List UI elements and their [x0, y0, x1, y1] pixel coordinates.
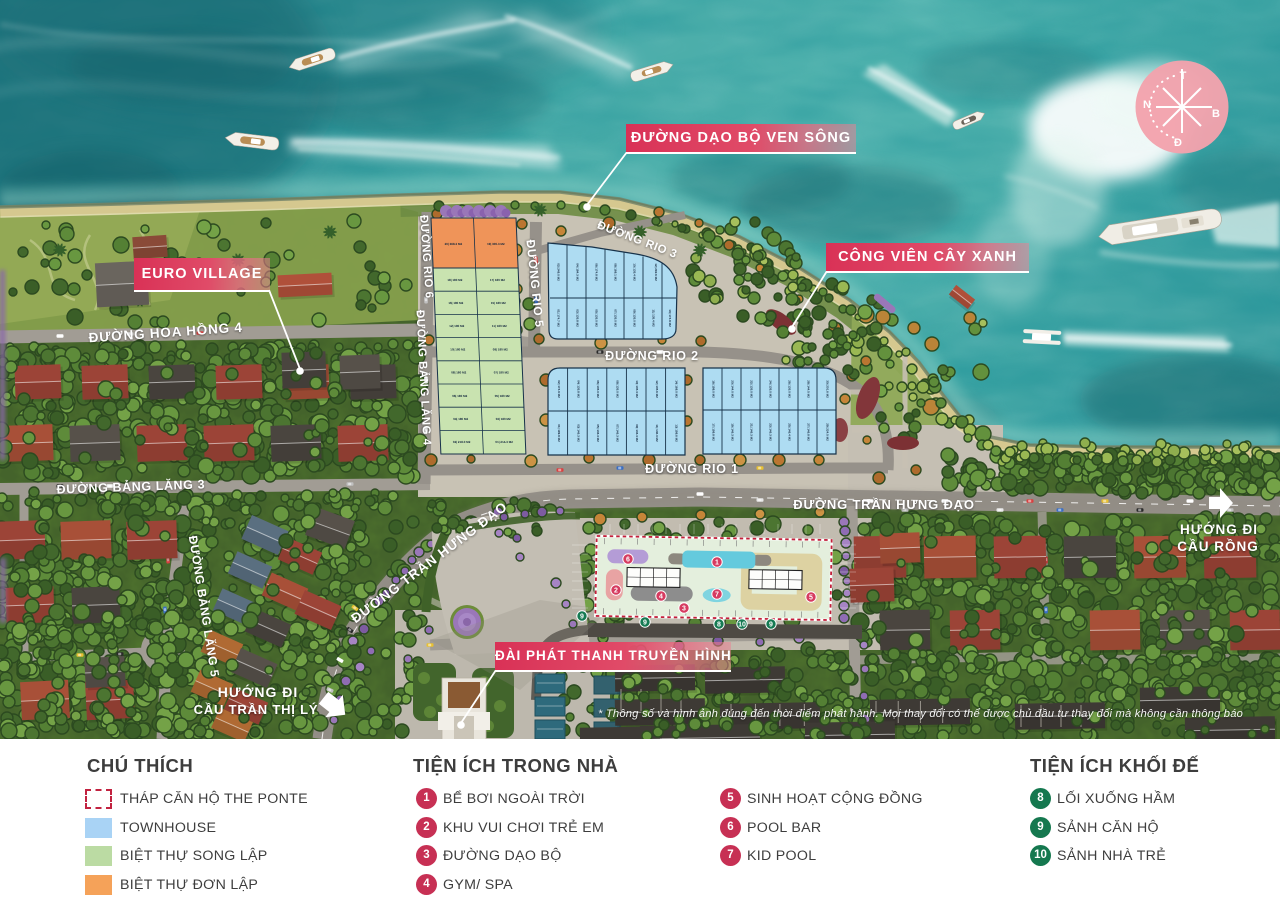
- svg-text:19| 300.3 M2: 19| 300.3 M2: [487, 242, 505, 246]
- svg-text:25| 146.4 M2: 25| 146.4 M2: [788, 423, 792, 441]
- svg-text:05| 180 M2: 05| 180 M2: [495, 394, 511, 398]
- svg-text:09| 146.4 M2: 09| 146.4 M2: [635, 424, 639, 442]
- svg-text:02| 174.9 M2: 02| 174.9 M2: [557, 380, 561, 398]
- svg-text:07| 135.0 M2: 07| 135.0 M2: [614, 309, 618, 327]
- svg-text:T: T: [1180, 70, 1187, 82]
- svg-text:03| 135.8 M2: 03| 135.8 M2: [576, 309, 580, 327]
- svg-text:22| 135.0 M2: 22| 135.0 M2: [750, 380, 754, 398]
- svg-text:5: 5: [809, 595, 813, 602]
- svg-text:CẦU RỒNG: CẦU RỒNG: [1177, 539, 1259, 554]
- svg-text:ĐƯỜNG RIO 2: ĐƯỜNG RIO 2: [605, 348, 699, 363]
- svg-text:* Thông số và hình ảnh đúng đế: * Thông số và hình ảnh đúng đến thời điể…: [598, 708, 1243, 720]
- svg-text:3: 3: [682, 606, 686, 613]
- svg-text:05| 135.0 M2: 05| 135.0 M2: [595, 309, 599, 327]
- svg-text:24| 135.0 M2: 24| 135.0 M2: [769, 380, 773, 398]
- svg-text:21| 146.3 M2: 21| 146.3 M2: [750, 423, 754, 441]
- svg-text:B: B: [1212, 108, 1220, 120]
- svg-text:04| 180 M2: 04| 180 M2: [453, 417, 469, 421]
- svg-text:HƯỚNG ĐI: HƯỚNG ĐI: [218, 683, 299, 700]
- svg-text:06| 180 M2: 06| 180 M2: [452, 394, 468, 398]
- svg-text:08| 135.0 M2: 08| 135.0 M2: [616, 380, 620, 398]
- svg-text:17| 180 M2: 17| 180 M2: [490, 278, 506, 282]
- svg-text:12| 180 M2: 12| 180 M2: [449, 324, 465, 328]
- svg-text:9: 9: [580, 614, 584, 621]
- svg-text:9: 9: [769, 622, 773, 629]
- svg-text:20| 144.0 M2: 20| 144.0 M2: [731, 380, 735, 398]
- svg-text:26| 135.0 M2: 26| 135.0 M2: [788, 380, 792, 398]
- svg-text:N: N: [1143, 99, 1151, 111]
- svg-text:16| 198.0 M2: 16| 198.0 M2: [712, 380, 716, 398]
- svg-text:28| 144.5 M2: 28| 144.5 M2: [807, 380, 811, 398]
- svg-text:08| 168.1 M2: 08| 168.1 M2: [614, 263, 618, 281]
- svg-text:11| 135.4 M2: 11| 135.4 M2: [652, 309, 656, 327]
- svg-text:Đ: Đ: [1174, 137, 1182, 149]
- svg-text:04| 184.3 M2: 04| 184.3 M2: [576, 263, 580, 281]
- svg-text:07| 146.3 M2: 07| 146.3 M2: [616, 424, 620, 442]
- svg-text:17| 199.8 M2: 17| 199.8 M2: [712, 423, 716, 441]
- svg-text:15| 180 M2: 15| 180 M2: [491, 301, 507, 305]
- svg-text:12| 292.6 M2: 12| 292.6 M2: [654, 263, 658, 281]
- svg-text:8: 8: [717, 622, 721, 629]
- svg-text:27| 146.8 M2: 27| 146.8 M2: [807, 423, 811, 441]
- svg-text:07| 180 M2: 07| 180 M2: [494, 371, 510, 375]
- svg-text:10| 180 M2: 10| 180 M2: [450, 347, 466, 351]
- svg-text:13| 174.8 M2: 13| 174.8 M2: [668, 309, 672, 327]
- svg-text:19| 146.3 M2: 19| 146.3 M2: [731, 423, 735, 441]
- svg-text:03| 146.3 M2: 03| 146.3 M2: [576, 424, 580, 442]
- svg-text:30| 201.6 M2: 30| 201.6 M2: [826, 380, 830, 398]
- svg-text:09| 180 M2: 09| 180 M2: [493, 347, 509, 351]
- svg-text:01| 214.3 M2: 01| 214.3 M2: [495, 440, 513, 444]
- svg-text:06| 174.8 M2: 06| 174.8 M2: [595, 263, 599, 281]
- svg-text:7: 7: [715, 592, 719, 599]
- svg-text:11| 180 M2: 11| 180 M2: [492, 324, 507, 328]
- svg-text:06| 135.0 M2: 06| 135.0 M2: [596, 380, 600, 398]
- svg-text:09| 135.0 M2: 09| 135.0 M2: [633, 309, 637, 327]
- svg-text:16| 180 M2: 16| 180 M2: [448, 301, 464, 305]
- svg-text:HƯỚNG ĐI: HƯỚNG ĐI: [1180, 522, 1258, 537]
- svg-text:02| 218.0 M2: 02| 218.0 M2: [453, 440, 471, 444]
- svg-text:04| 135.8 M2: 04| 135.8 M2: [576, 380, 580, 398]
- svg-text:10| 135.4 M2: 10| 135.4 M2: [633, 263, 637, 281]
- svg-text:29| 224.5 M2: 29| 224.5 M2: [826, 423, 830, 441]
- svg-text:11| 146.3 M2: 11| 146.3 M2: [655, 424, 659, 442]
- svg-text:CẦU TRẦN THỊ LÝ: CẦU TRẦN THỊ LÝ: [194, 702, 319, 717]
- svg-text:12| 135.6 M2: 12| 135.6 M2: [655, 380, 659, 398]
- svg-text:23| 146.3 M2: 23| 146.3 M2: [769, 423, 773, 441]
- svg-text:9: 9: [643, 620, 647, 627]
- svg-text:01| 199.8 M2: 01| 199.8 M2: [557, 424, 561, 442]
- svg-text:13| 198.6 M2: 13| 198.6 M2: [674, 424, 678, 442]
- svg-text:ĐƯỜNG TRẦN HƯNG ĐẠO: ĐƯỜNG TRẦN HƯNG ĐẠO: [793, 497, 974, 512]
- svg-text:02| 249.0 M2: 02| 249.0 M2: [557, 263, 561, 281]
- svg-text:4: 4: [659, 594, 663, 601]
- svg-text:03| 180 M2: 03| 180 M2: [496, 417, 512, 421]
- svg-text:05| 146.3 M2: 05| 146.3 M2: [596, 424, 600, 442]
- svg-text:14| 168.0 M2: 14| 168.0 M2: [674, 380, 678, 398]
- svg-text:6: 6: [626, 557, 630, 564]
- svg-text:1: 1: [715, 560, 719, 567]
- svg-text:01| 174.7 M2: 01| 174.7 M2: [557, 309, 561, 327]
- svg-text:20| 368.3 M2: 20| 368.3 M2: [444, 242, 462, 246]
- svg-text:08| 180 M2: 08| 180 M2: [451, 371, 467, 375]
- svg-text:10: 10: [738, 622, 746, 629]
- svg-text:10| 135.4 M2: 10| 135.4 M2: [635, 380, 639, 398]
- svg-text:18| 180 M2: 18| 180 M2: [447, 278, 463, 282]
- svg-text:2: 2: [614, 588, 618, 595]
- svg-text:ĐƯỜNG RIO 1: ĐƯỜNG RIO 1: [645, 461, 739, 476]
